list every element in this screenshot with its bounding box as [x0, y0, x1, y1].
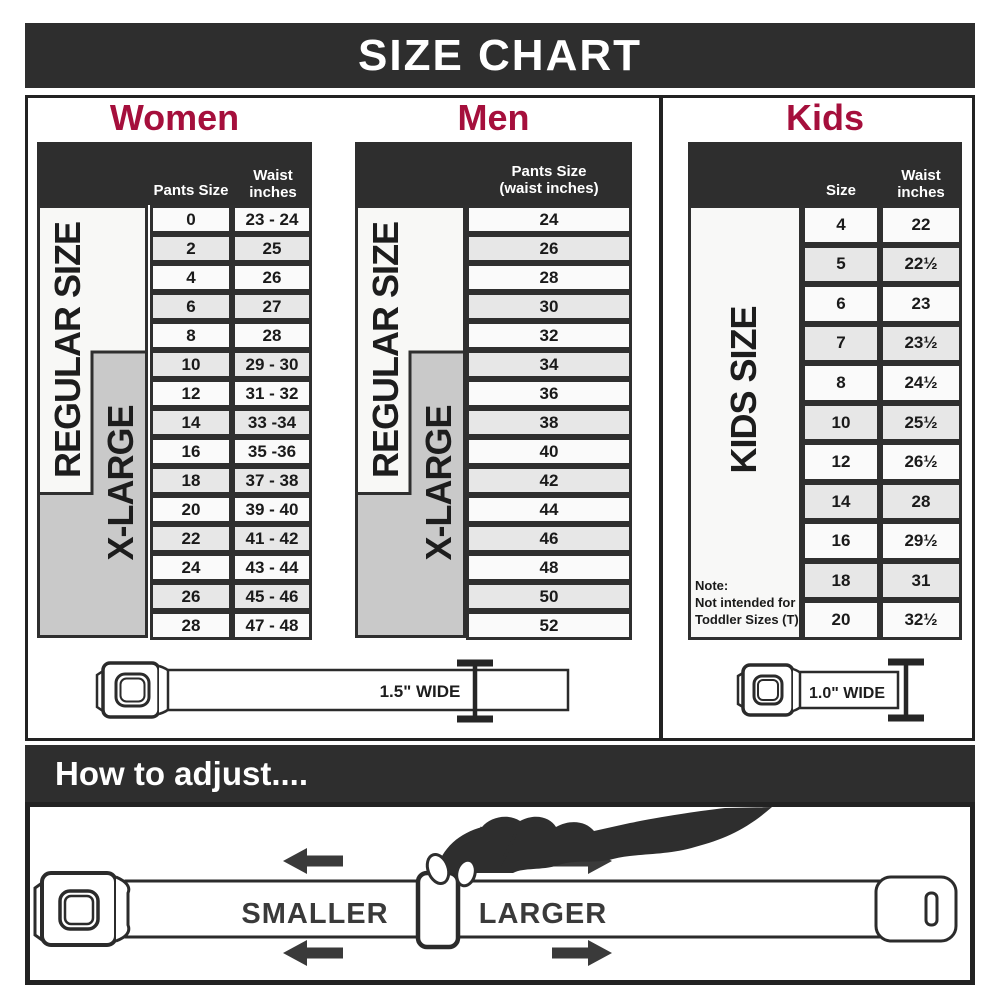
waist-cell: 22	[880, 205, 962, 245]
waist-cell: 31	[880, 561, 962, 601]
table-row: 50	[466, 582, 632, 611]
waist-cell: 23 - 24	[232, 205, 312, 234]
pants-size-cell: 24	[150, 553, 232, 582]
waist-cell: 47 - 48	[232, 611, 312, 640]
table-row: 34	[466, 350, 632, 379]
pants-size-cell: 10	[150, 350, 232, 379]
men-x-large-label: X-LARGE	[418, 406, 460, 561]
waist-cell: 29½	[880, 521, 962, 561]
pants-size-cell: 22	[150, 524, 232, 553]
pants-size-cell: 4	[150, 263, 232, 292]
pants-size-cell: 24	[466, 205, 632, 234]
pants-size-cell: 36	[466, 379, 632, 408]
pants-size-cell: 12	[150, 379, 232, 408]
men-col-pants-size: Pants Size (waist inches)	[466, 163, 632, 198]
kids-size-cell: 7	[802, 324, 880, 364]
arrow-left-icon	[283, 848, 343, 874]
kids-size-cell: 12	[802, 442, 880, 482]
men-table-header: Pants Size (waist inches)	[355, 142, 632, 205]
waist-cell: 27	[232, 292, 312, 321]
kids-size-cell: 10	[802, 403, 880, 443]
seatbelt-buckle-icon	[35, 873, 129, 945]
table-row: 16 35 -36	[150, 437, 312, 466]
men-section-title: Men	[355, 97, 632, 139]
adjust-illustration-box: SMALLER LARGER	[25, 802, 975, 985]
pants-size-cell: 30	[466, 292, 632, 321]
table-row: 42	[466, 466, 632, 495]
table-row: 18 37 - 38	[150, 466, 312, 495]
women-size-table: 0 23 - 24 2 25 4 26 6 27 8 28	[150, 205, 312, 640]
table-row: 2 25	[150, 234, 312, 263]
kids-size-cell: 16	[802, 521, 880, 561]
table-row: 12 31 - 32	[150, 379, 312, 408]
pants-size-cell: 26	[466, 234, 632, 263]
pants-size-cell: 46	[466, 524, 632, 553]
pants-size-cell: 40	[466, 437, 632, 466]
table-row: 14 33 -34	[150, 408, 312, 437]
pants-size-cell: 34	[466, 350, 632, 379]
waist-cell: 33 -34	[232, 408, 312, 437]
arrow-left-icon	[283, 940, 343, 966]
table-row: 5 22½	[802, 245, 962, 285]
table-row: 20 39 - 40	[150, 495, 312, 524]
pants-size-cell: 16	[150, 437, 232, 466]
how-to-adjust-bar: How to adjust....	[25, 745, 975, 802]
table-row: 46	[466, 524, 632, 553]
pinching-hand-icon	[423, 807, 772, 888]
table-row: 40	[466, 437, 632, 466]
belt-strap	[168, 670, 568, 710]
pants-size-cell: 20	[150, 495, 232, 524]
waist-cell: 31 - 32	[232, 379, 312, 408]
table-row: 28 47 - 48	[150, 611, 312, 640]
pants-size-cell: 48	[466, 553, 632, 582]
belt-tip	[876, 877, 956, 941]
waist-cell: 32½	[880, 600, 962, 640]
table-row: 16 29½	[802, 521, 962, 561]
kids-table-header: Size Waist inches	[688, 142, 962, 205]
waist-cell: 26½	[880, 442, 962, 482]
size-chart-header-bar: SIZE CHART	[25, 23, 975, 88]
waist-cell: 28	[880, 482, 962, 522]
kids-size-cell: 4	[802, 205, 880, 245]
waist-cell: 25	[232, 234, 312, 263]
pants-size-cell: 28	[150, 611, 232, 640]
pants-size-cell: 28	[466, 263, 632, 292]
kids-size-cell: 14	[802, 482, 880, 522]
table-row: 26 45 - 46	[150, 582, 312, 611]
table-row: 36	[466, 379, 632, 408]
pants-size-cell: 44	[466, 495, 632, 524]
waist-cell: 45 - 46	[232, 582, 312, 611]
kids-size-label: KIDS SIZE	[723, 306, 765, 473]
women-col-waist: Waist inches	[234, 167, 312, 202]
table-row: 32	[466, 321, 632, 350]
table-row: 12 26½	[802, 442, 962, 482]
waist-cell: 29 - 30	[232, 350, 312, 379]
men-size-table: 24 26 28 30 32 34 36	[466, 205, 632, 640]
larger-label: LARGER	[479, 898, 607, 930]
pants-size-cell: 32	[466, 321, 632, 350]
pants-size-cell: 6	[150, 292, 232, 321]
table-row: 7 23½	[802, 324, 962, 364]
table-row: 6 27	[150, 292, 312, 321]
pants-size-cell: 14	[150, 408, 232, 437]
kids-belt-illustration: 1.0" WIDE	[735, 655, 935, 727]
table-row: 38	[466, 408, 632, 437]
adult-belt-illustration: 1.5" WIDE	[95, 655, 575, 727]
table-row: 20 32½	[802, 600, 962, 640]
waist-cell: 43 - 44	[232, 553, 312, 582]
kids-size-table: 4 22 5 22½ 6 23 7 23½ 8 24½	[802, 205, 962, 640]
kids-note: Note: Not intended for Toddler Sizes (T)	[695, 578, 801, 629]
table-row: 18 31	[802, 561, 962, 601]
table-row: 0 23 - 24	[150, 205, 312, 234]
table-row: 52	[466, 611, 632, 640]
waist-cell: 41 - 42	[232, 524, 312, 553]
table-row: 10 25½	[802, 403, 962, 443]
waist-cell: 23½	[880, 324, 962, 364]
table-row: 24	[466, 205, 632, 234]
table-row: 4 26	[150, 263, 312, 292]
women-table-header: Pants Size Waist inches	[37, 142, 312, 205]
arrow-right-icon	[552, 940, 612, 966]
table-row: 48	[466, 553, 632, 582]
table-row: 26	[466, 234, 632, 263]
table-row: 8 28	[150, 321, 312, 350]
table-row: 30	[466, 292, 632, 321]
table-row: 10 29 - 30	[150, 350, 312, 379]
how-to-adjust-title: How to adjust....	[25, 755, 308, 793]
women-regular-size-label: REGULAR SIZE	[47, 222, 89, 478]
kids-col-size: Size	[802, 182, 880, 199]
pants-size-cell: 38	[466, 408, 632, 437]
waist-cell: 35 -36	[232, 437, 312, 466]
table-row: 24 43 - 44	[150, 553, 312, 582]
waist-cell: 26	[232, 263, 312, 292]
women-col-pants-size: Pants Size	[150, 182, 232, 199]
table-row: 8 24½	[802, 363, 962, 403]
pants-size-cell: 2	[150, 234, 232, 263]
adult-belt-width-label: 1.5" WIDE	[380, 682, 461, 701]
pants-size-cell: 52	[466, 611, 632, 640]
kids-col-waist: Waist inches	[880, 167, 962, 202]
smaller-label: SMALLER	[241, 898, 388, 930]
waist-cell: 22½	[880, 245, 962, 285]
table-row: 6 23	[802, 284, 962, 324]
kids-section-title: Kids	[688, 97, 962, 139]
pants-size-cell: 42	[466, 466, 632, 495]
size-chart-infographic: SIZE CHART Women Men Kids Pants Size Wai…	[0, 0, 1000, 1000]
table-row: 28	[466, 263, 632, 292]
pants-size-cell: 50	[466, 582, 632, 611]
kids-belt-width-label: 1.0" WIDE	[809, 685, 885, 702]
table-row: 44	[466, 495, 632, 524]
kids-size-cell: 8	[802, 363, 880, 403]
page-title: SIZE CHART	[358, 31, 642, 81]
kids-size-cell: 20	[802, 600, 880, 640]
men-regular-size-label: REGULAR SIZE	[365, 222, 407, 478]
table-row: 14 28	[802, 482, 962, 522]
adjust-illustration: SMALLER LARGER	[30, 807, 970, 980]
waist-cell: 39 - 40	[232, 495, 312, 524]
seatbelt-buckle-icon	[738, 665, 803, 715]
table-row: 22 41 - 42	[150, 524, 312, 553]
waist-cell: 23	[880, 284, 962, 324]
waist-cell: 28	[232, 321, 312, 350]
women-x-large-label: X-LARGE	[100, 406, 142, 561]
waist-cell: 37 - 38	[232, 466, 312, 495]
kids-size-cell: 5	[802, 245, 880, 285]
women-section-title: Women	[37, 97, 312, 139]
table-row: 4 22	[802, 205, 962, 245]
waist-cell: 25½	[880, 403, 962, 443]
waist-cell: 24½	[880, 363, 962, 403]
section-divider	[659, 95, 663, 741]
seatbelt-buckle-icon	[97, 663, 172, 717]
kids-size-cell: 18	[802, 561, 880, 601]
pants-size-cell: 26	[150, 582, 232, 611]
pants-size-cell: 0	[150, 205, 232, 234]
kids-size-cell: 6	[802, 284, 880, 324]
pants-size-cell: 18	[150, 466, 232, 495]
pants-size-cell: 8	[150, 321, 232, 350]
